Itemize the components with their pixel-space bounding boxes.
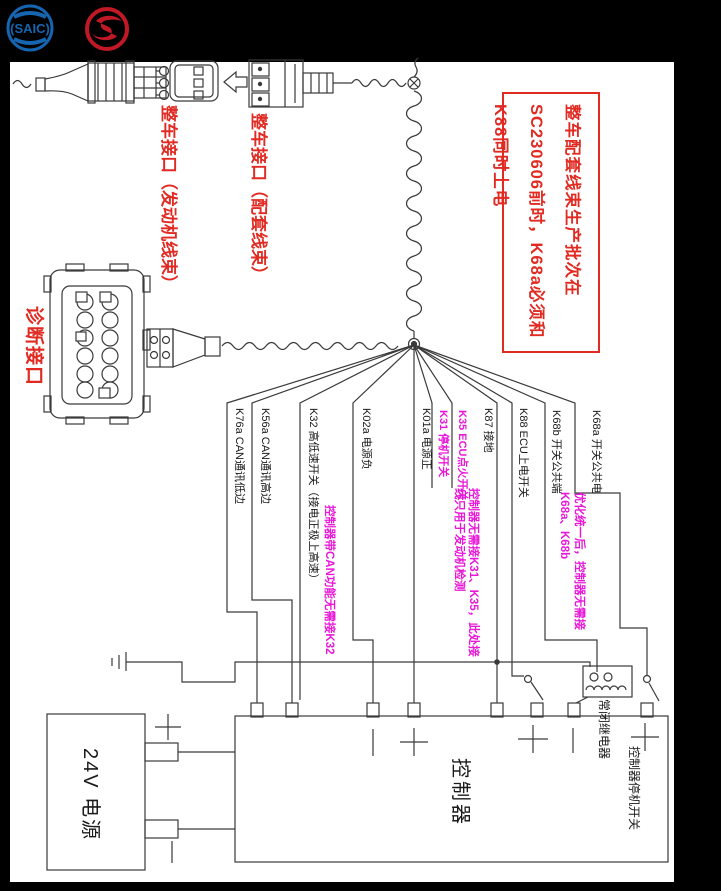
wire-label-k68b: K68b 开关公共端 (550, 410, 561, 494)
ground-symbol (112, 652, 590, 682)
engine-harness-connector (13, 61, 218, 103)
wire-label-k31: K31 停机开关 (437, 410, 448, 477)
wire-label-k01a: K01a 电源正 (420, 408, 431, 470)
label-vehicle-interface-matching: 整车接口（配套线束） (250, 113, 267, 283)
plus-mark (518, 725, 548, 753)
power-supply-label: 24V 电源 (80, 748, 100, 841)
wire-label-k56a: K56a CAN通讯高边 (259, 408, 270, 504)
stop-switch-label: 控制器停机开关 (628, 746, 640, 830)
wire-label-k68a: K68a 开关公共电 (590, 410, 601, 494)
note-k31-k35: 控制器无需接K31、K35，此处接线只用于发动机检测 (452, 488, 480, 660)
note-k68: 优化统一后，控制器无需接K68a、K68b (556, 492, 586, 634)
wire-label-k88: K88 ECU上电开关 (517, 408, 528, 498)
wire-label-k76a: K76a CAN通讯低边 (233, 408, 244, 504)
relay-label: 常闭继电器 (598, 699, 610, 759)
relay-symbol (576, 666, 632, 703)
ecu-power-switch-symbol (525, 676, 544, 701)
warning-note: 整车配套线束生产批次在SC230606前时，K68a必须和K88同时上电 (502, 92, 600, 353)
wire-label-k02a: K02a 电源负 (360, 408, 371, 470)
label-diagnostic-interface: 诊断接口 (24, 306, 43, 386)
diagnostic-mating-connector (147, 329, 220, 367)
plus-mark (155, 714, 181, 740)
note-k32: 控制器带CAN功能无需接K32 (323, 505, 335, 655)
stop-switch-symbol (644, 676, 660, 702)
matching-harness-connector (249, 58, 420, 107)
arrow-left-icon (224, 72, 247, 92)
controller-title: 控制器 (450, 758, 470, 827)
diagnostic-connector (44, 264, 150, 424)
wire-label-k35: K35 ECU点火开关 (456, 410, 467, 500)
schematic-page: (SAIC) (0, 0, 721, 891)
plus-mark (400, 728, 428, 756)
power-supply-box (47, 714, 235, 870)
wire-label-k87: K87 接地 (482, 408, 493, 453)
coiled-cable (407, 91, 422, 331)
wire-label-k32: K32 高低速开关（接电正极上高速） (307, 408, 318, 585)
label-vehicle-interface-engine: 整车接口（发动机线束） (160, 105, 177, 292)
